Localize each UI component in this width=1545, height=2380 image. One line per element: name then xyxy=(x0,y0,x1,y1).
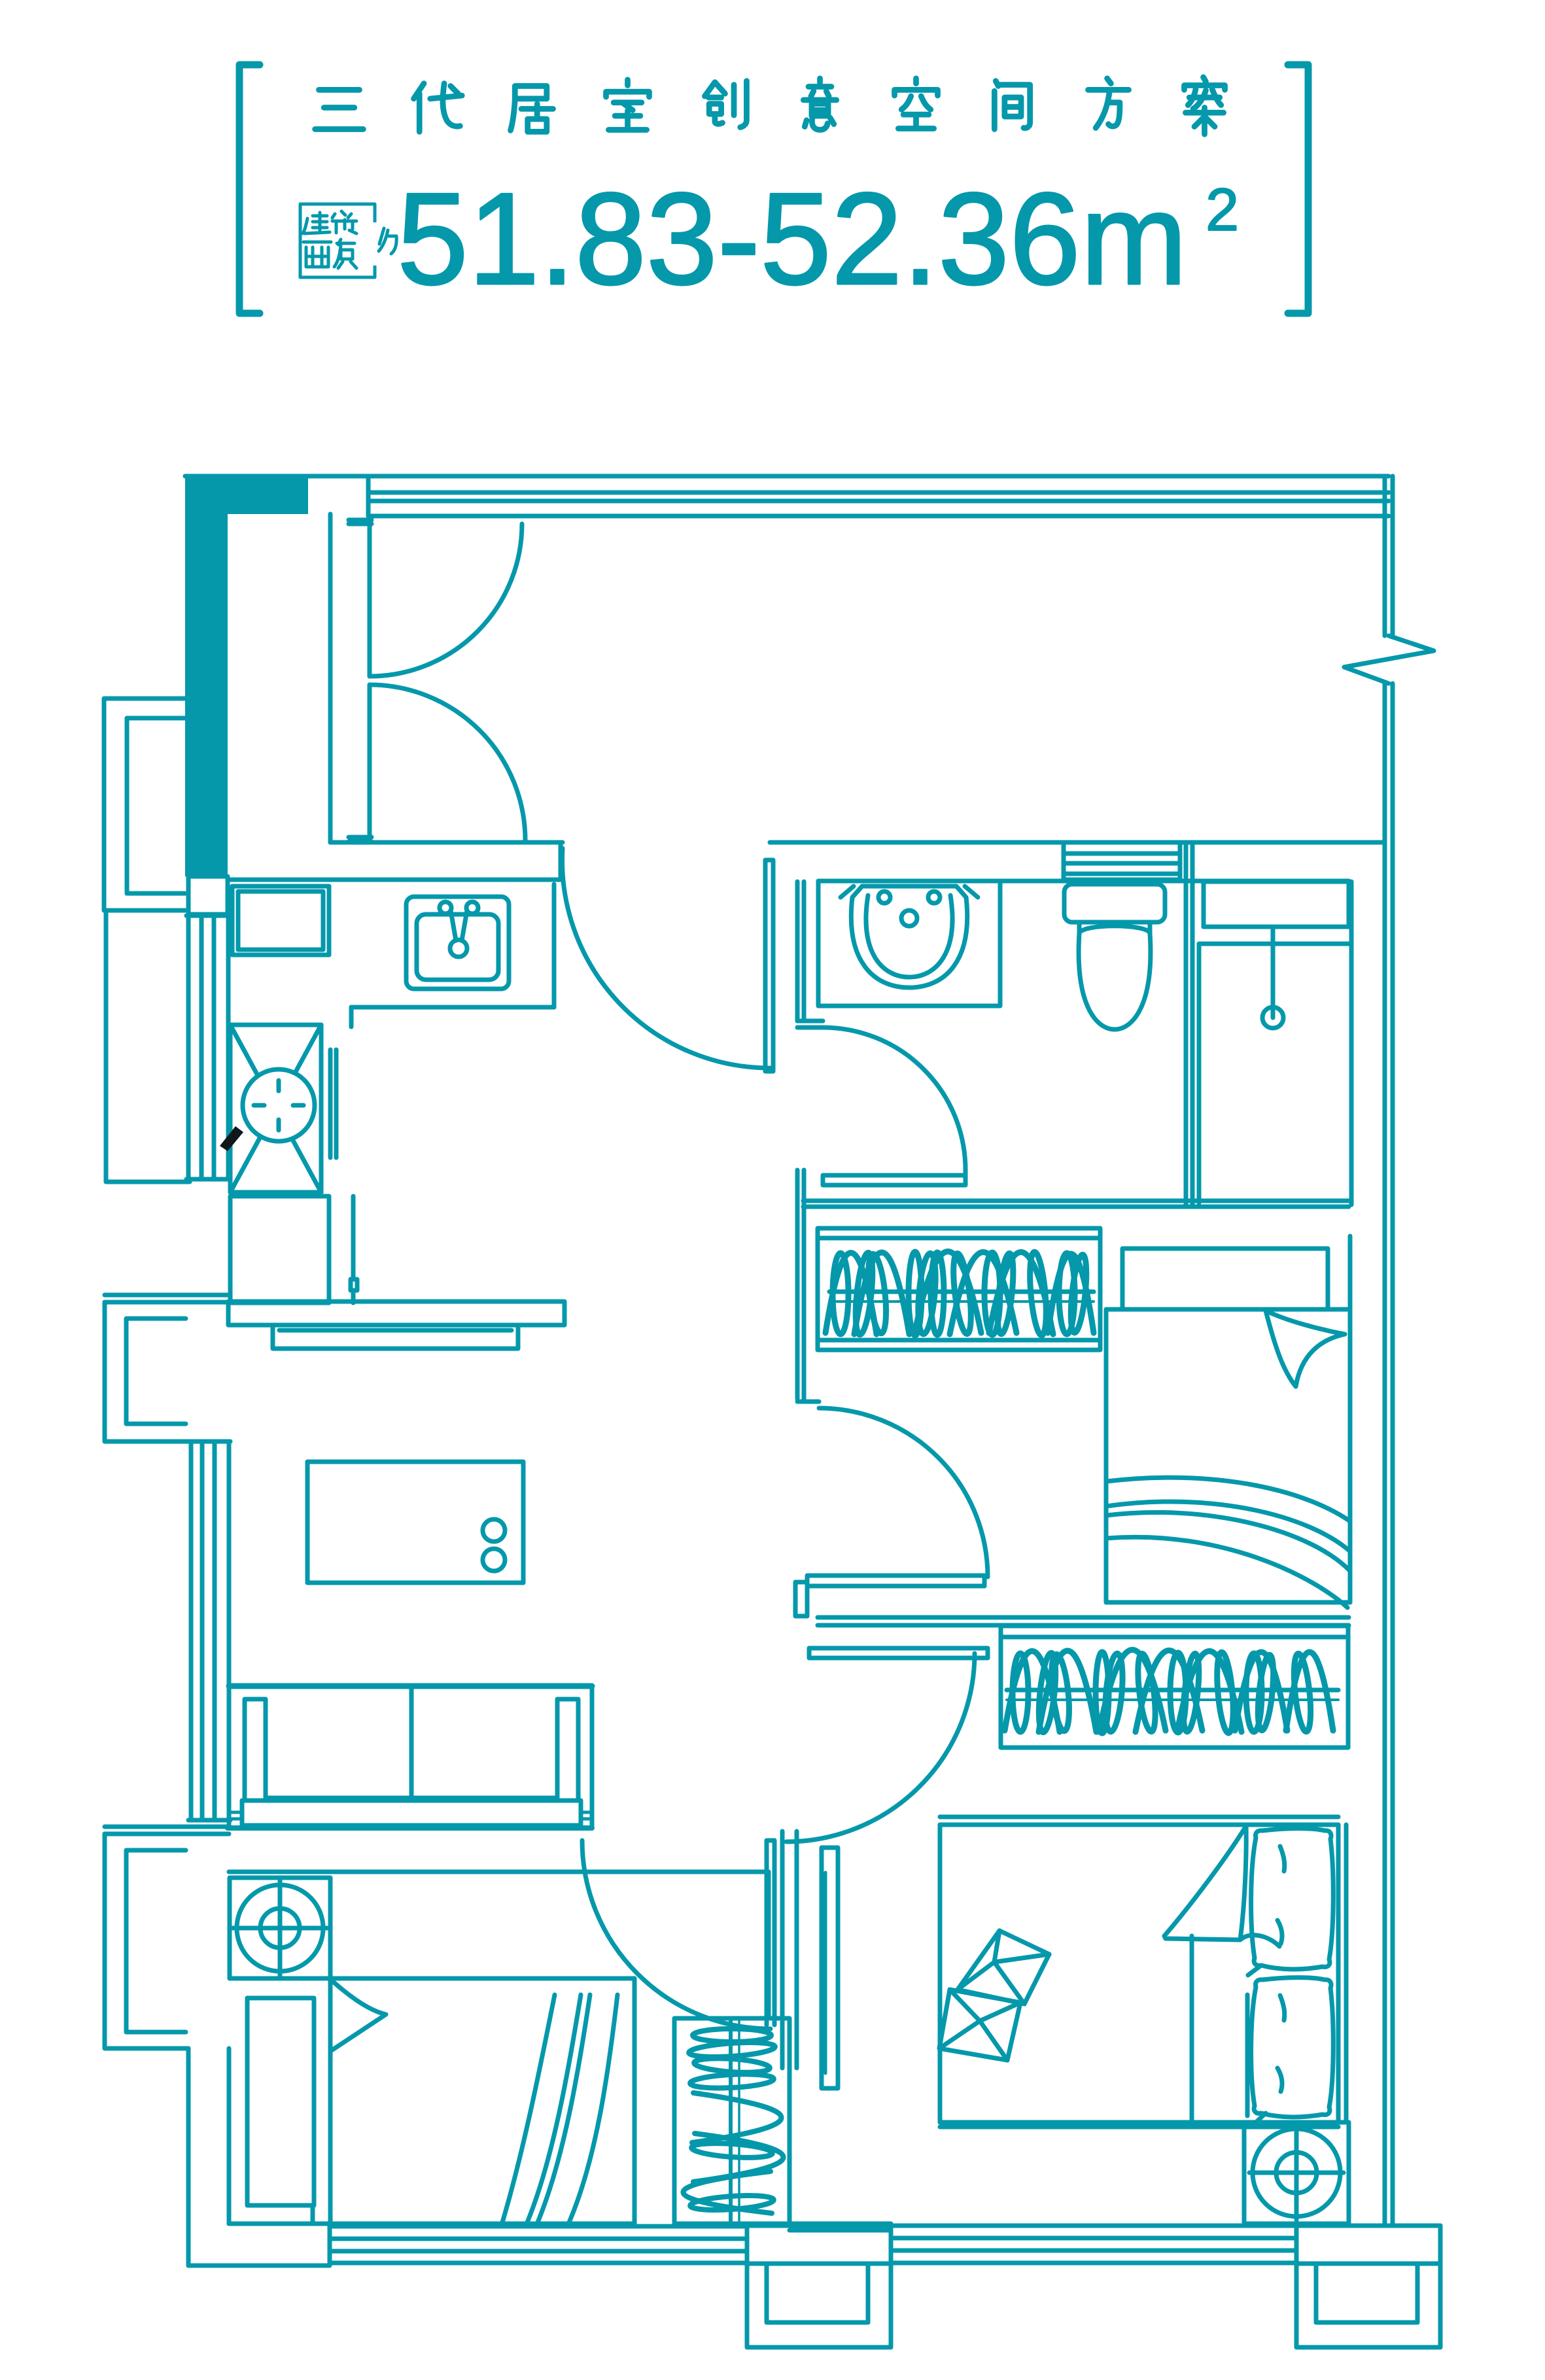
svg-text:2: 2 xyxy=(1206,177,1239,243)
svg-text:51.83-52.36m: 51.83-52.36m xyxy=(397,166,1187,312)
